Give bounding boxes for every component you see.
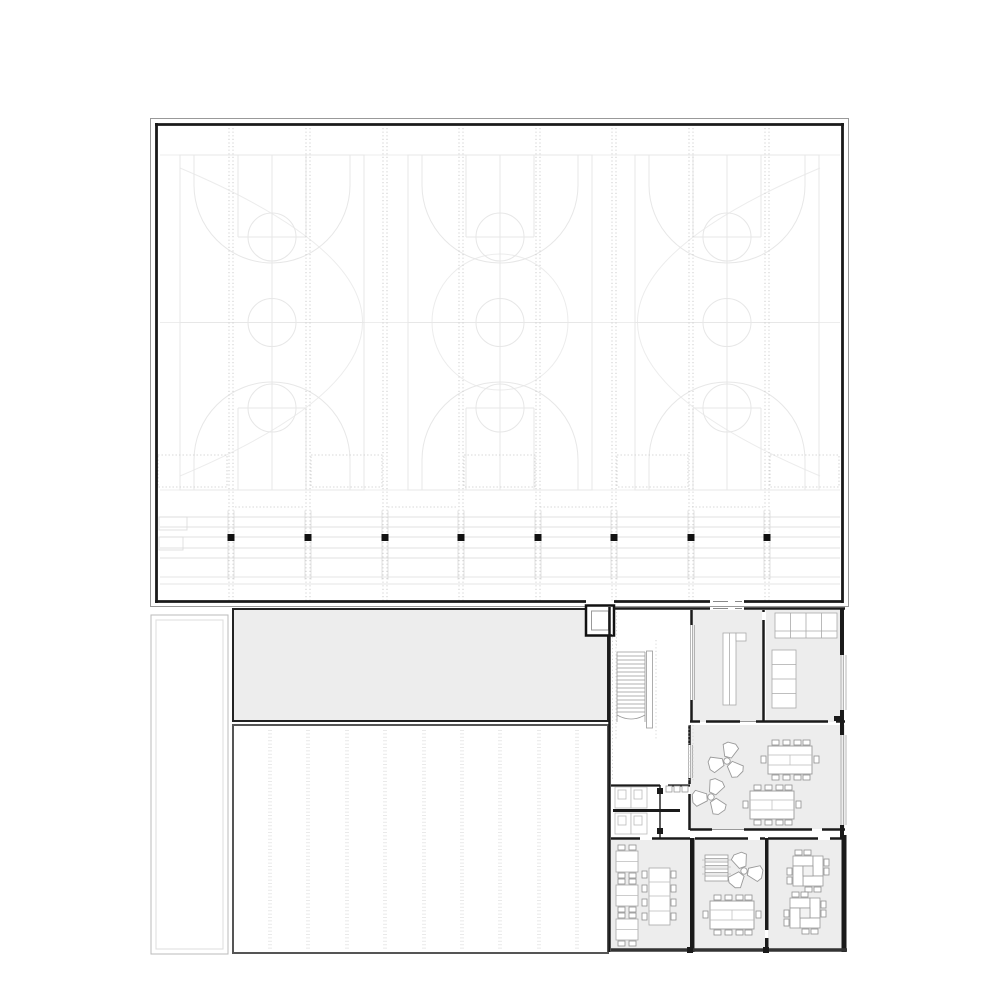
- conference-table: [743, 785, 801, 825]
- stair: [616, 640, 656, 740]
- shelving: [772, 650, 796, 708]
- room-classroom-2: [695, 839, 766, 951]
- pinwheel-table-group: [787, 850, 829, 892]
- floor-plan-drawing: [0, 0, 1000, 1000]
- basketball-court-2: [408, 155, 592, 490]
- room-store: [691, 610, 764, 722]
- sinks: [666, 786, 688, 792]
- lockers: [775, 613, 837, 638]
- room-multipurpose: [233, 609, 608, 721]
- conference-table: [703, 895, 761, 935]
- wc-block: [611, 785, 690, 838]
- conference-table: [761, 740, 819, 780]
- pinwheel-table-group: [784, 892, 826, 934]
- sports-hall: [151, 119, 849, 607]
- floor-plan-canvas: [0, 0, 1000, 1000]
- room-seminar: [689, 712, 847, 838]
- basketball-court-3: [635, 155, 819, 490]
- wall-notch: [834, 716, 842, 721]
- room-classroom-1: [611, 838, 695, 952]
- stair-break-line: [617, 715, 645, 719]
- bookshelf: [702, 855, 731, 881]
- room-changing: [766, 608, 846, 725]
- room-classroom-3: [765, 835, 845, 952]
- wall-niches: [159, 517, 187, 550]
- room-open-hall: [233, 725, 608, 953]
- basketball-court-1: [180, 155, 364, 490]
- equipment-dashed-outlines: [158, 455, 839, 507]
- terrace-strip: [151, 615, 228, 954]
- ground-floor-wing: [151, 606, 847, 955]
- band-lines: [160, 517, 840, 584]
